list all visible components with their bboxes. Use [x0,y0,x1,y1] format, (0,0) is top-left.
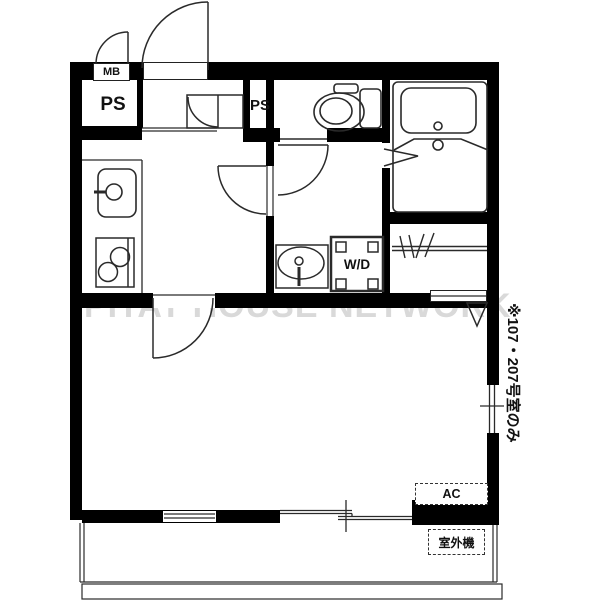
wall-top [70,62,499,80]
wall-center-lower [266,216,274,293]
kitchen-counter [82,160,142,293]
hanger-pipe [392,233,487,258]
bifold-door [384,149,418,166]
closet-front-shelf [430,290,487,302]
washroom-door-gap [280,128,327,142]
washbasin [276,245,328,288]
wall-left [70,80,82,520]
window-bottom-opening [163,511,216,522]
dk-door-swing [218,166,273,216]
pipe-space-left-label: PS [88,90,138,120]
bathtub-unit [393,82,488,212]
entrance-door-swing [142,2,208,70]
outdoor-unit-label: 室外機 [438,534,474,551]
wall-bath-left-upper [382,80,390,143]
stove [96,238,134,287]
pipe-space-right-label: PS [246,93,274,117]
toilet [314,84,381,131]
washer-dryer-label: W/D [331,237,383,291]
entrance-step-line [142,128,217,131]
wall-toilet-bottom [327,128,382,142]
outdoor-unit-box: 室外機 [428,529,485,555]
living-door-opening [153,293,215,308]
shoe-cabinet [187,95,243,128]
wall-hall-bottom [82,126,142,140]
wall-bath-left-lower [382,168,390,293]
floorplan: PITAT HOUSE NETWORK [0,0,600,600]
washroom-door-swing [278,139,328,195]
entrance-door-sill [143,62,208,80]
meter-box-door-swing [96,32,128,64]
window-right-opening [486,385,499,433]
wall-bath-closet-divider [385,212,487,224]
sliding-door-opening [280,508,412,524]
air-conditioner-label: AC [442,487,460,501]
air-conditioner-box: AC [415,483,488,505]
room-restriction-note: ※107・207号室のみ [503,303,524,443]
kitchen-sink [94,169,136,217]
meter-box-label: MB [93,63,130,81]
